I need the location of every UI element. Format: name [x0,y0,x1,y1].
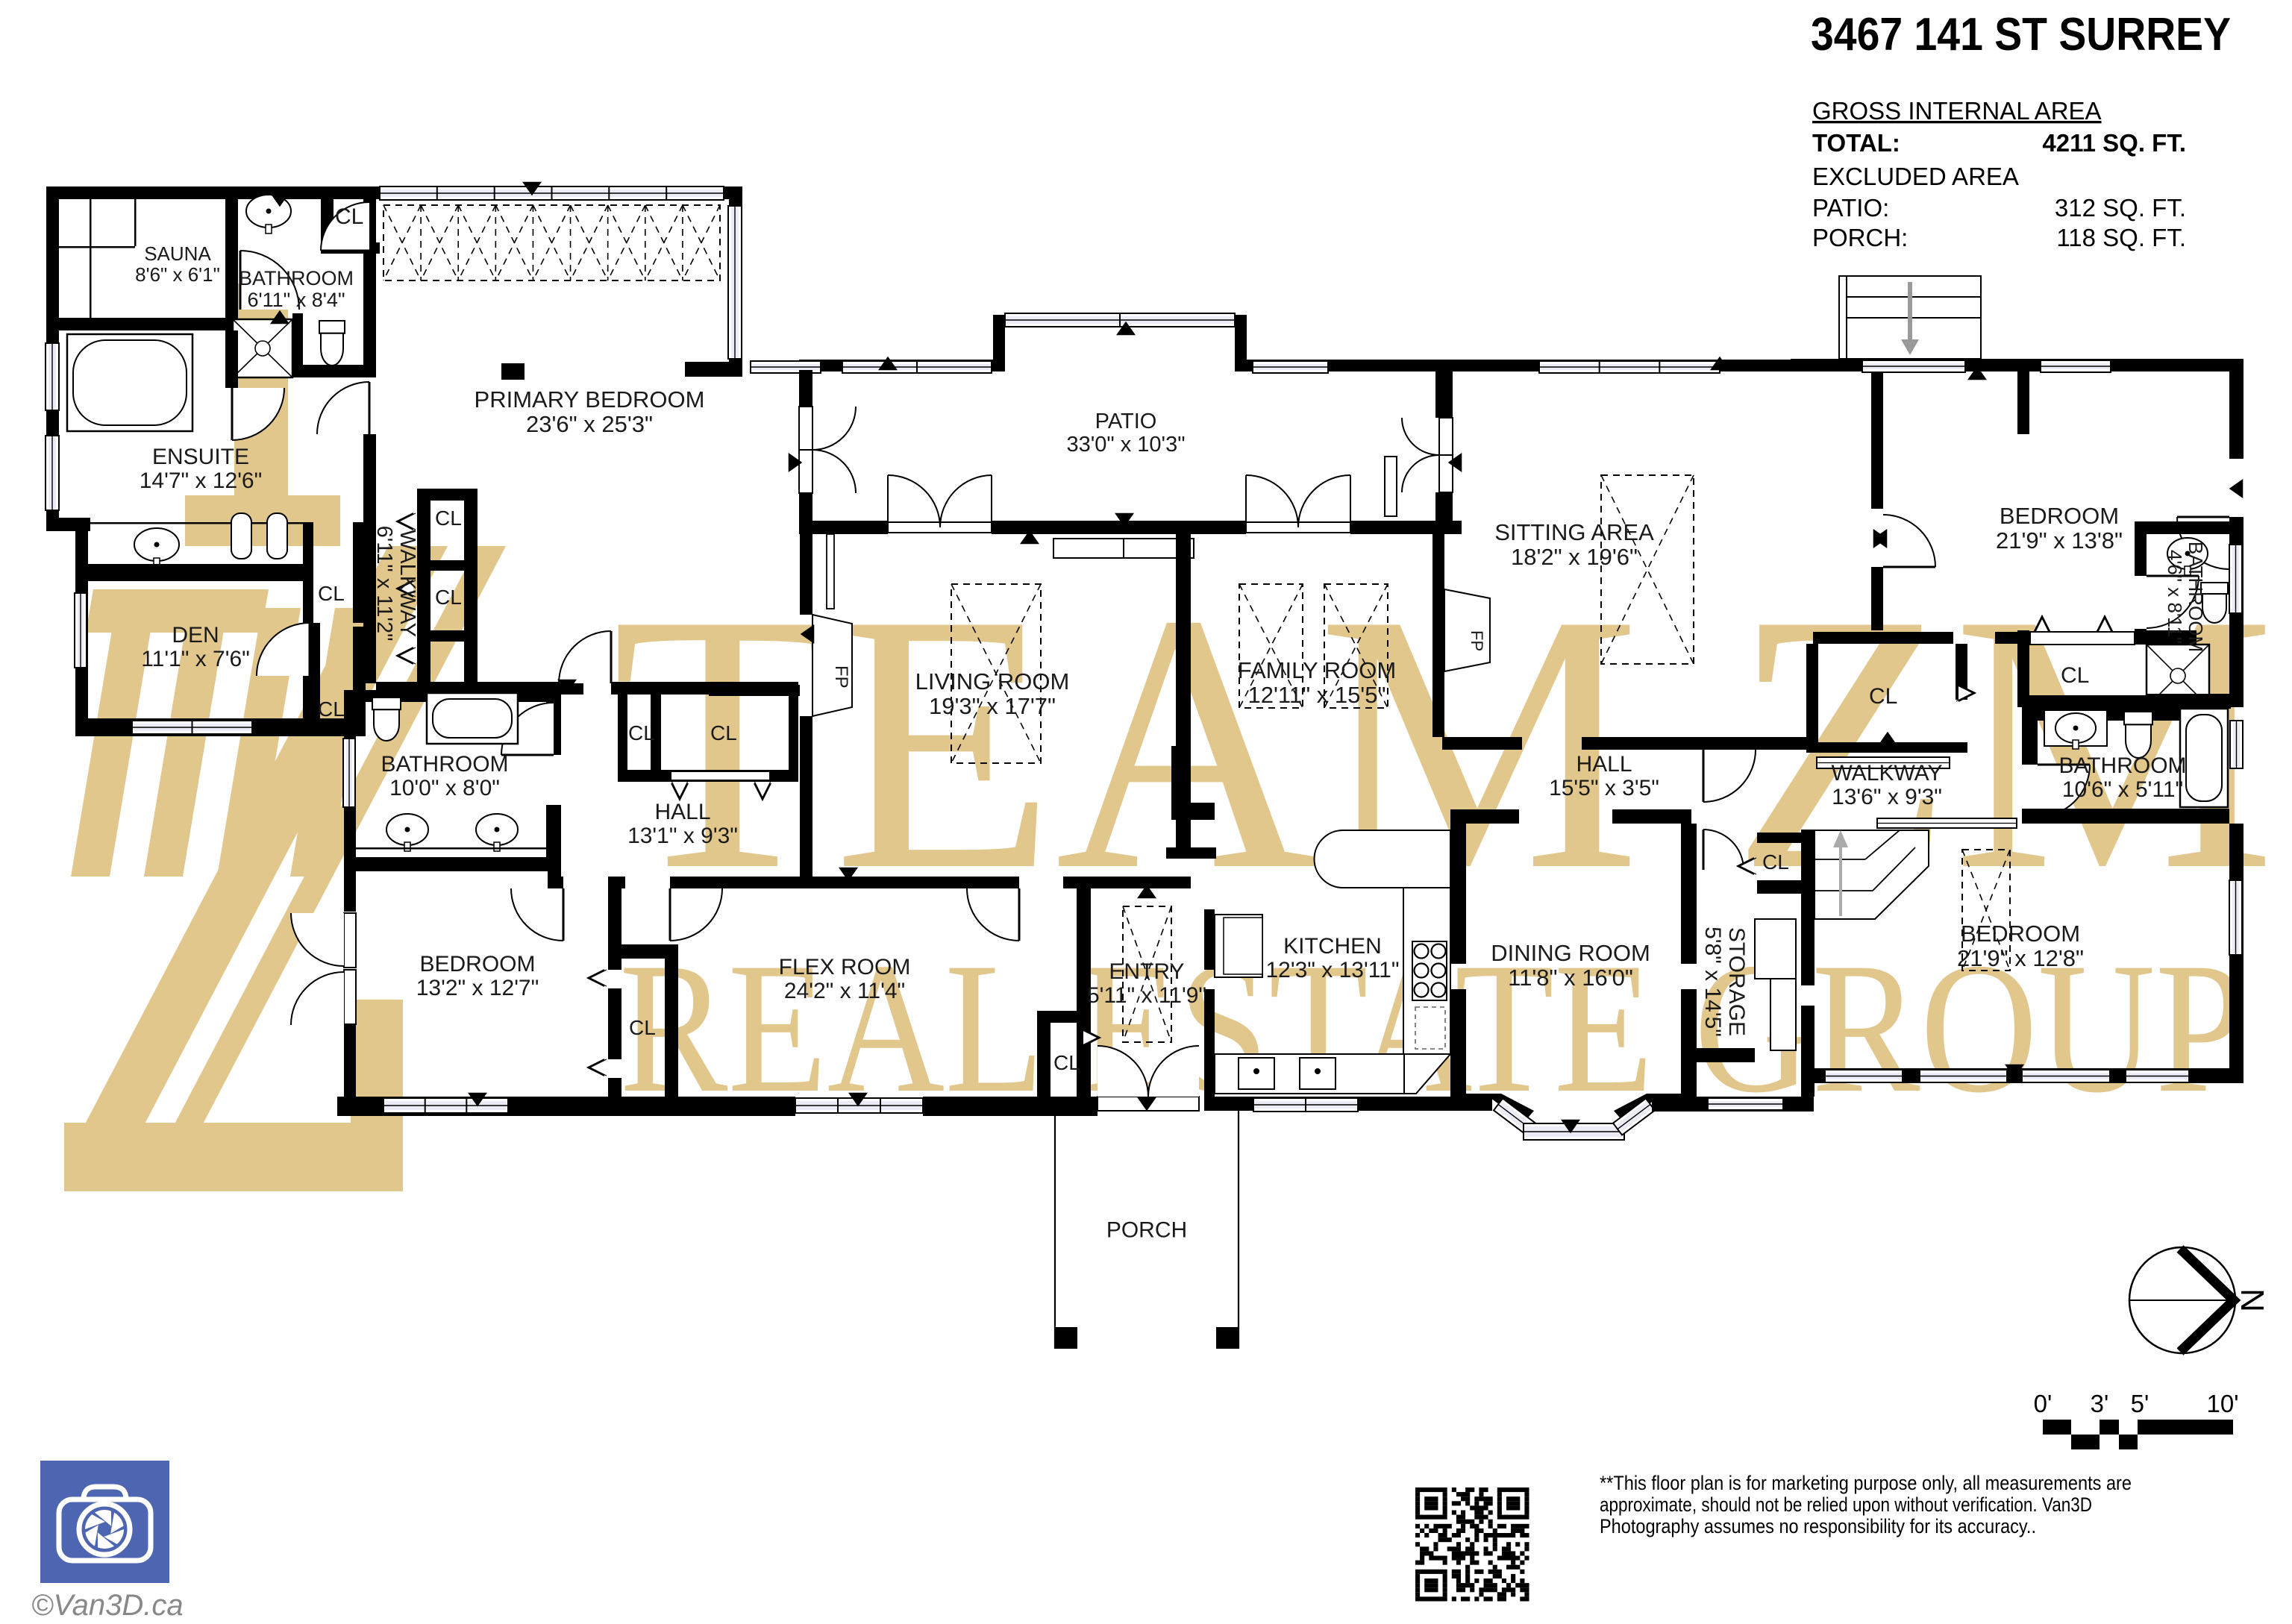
svg-text:LIVING ROOM: LIVING ROOM [915,668,1070,695]
svg-text:STORAGE: STORAGE [1724,927,1749,1036]
svg-text:DINING ROOM: DINING ROOM [1491,940,1650,966]
svg-text:12'11" x 15'5": 12'11" x 15'5" [1248,682,1386,708]
svg-text:CL: CL [1869,684,1897,709]
svg-text:WALKWAY: WALKWAY [1832,761,1943,786]
svg-text:SITTING AREA: SITTING AREA [1494,519,1654,545]
svg-text:CL: CL [710,721,737,744]
svg-text:21'9" x 12'8": 21'9" x 12'8" [1957,945,2084,971]
svg-text:4211 SQ. FT.: 4211 SQ. FT. [2042,129,2186,157]
svg-text:11'8" x 16'0": 11'8" x 16'0" [1508,965,1633,991]
svg-text:12'3" x 13'11": 12'3" x 13'11" [1266,958,1400,982]
svg-text:**This floor plan is for marke: **This floor plan is for marketing purpo… [1600,1472,2132,1494]
svg-text:0': 0' [2034,1390,2053,1417]
svg-text:CL: CL [628,721,655,744]
svg-text:CL: CL [2061,663,2089,688]
svg-text:23'6" x 25'3": 23'6" x 25'3" [526,411,653,437]
svg-text:CL: CL [318,697,345,721]
svg-text:BEDROOM: BEDROOM [2000,503,2119,529]
svg-text:CL: CL [435,586,462,609]
svg-text:CL: CL [629,1016,656,1039]
svg-text:CL: CL [318,582,345,605]
svg-text:PORCH:: PORCH: [1812,224,1908,251]
svg-text:14'7" x 12'6": 14'7" x 12'6" [140,468,263,493]
svg-text:BATHROOM: BATHROOM [2058,753,2186,778]
svg-text:FP: FP [831,665,851,689]
svg-text:WALKWAY: WALKWAY [395,530,419,637]
svg-text:HALL: HALL [654,800,710,824]
svg-text:21'9" x 13'8": 21'9" x 13'8" [1996,527,2123,554]
svg-text:PATIO:: PATIO: [1812,194,1889,222]
svg-text:6'11" x 11'2": 6'11" x 11'2" [372,526,396,642]
svg-text:3467 141 ST SURREY: 3467 141 ST SURREY [1811,9,2231,60]
svg-text:TOTAL:: TOTAL: [1812,129,1900,157]
svg-text:5'11" x 11'9": 5'11" x 11'9" [1087,983,1206,1008]
svg-text:CL: CL [435,507,462,530]
svg-text:PATIO: PATIO [1095,410,1157,433]
svg-text:ENTRY: ENTRY [1109,959,1184,984]
svg-text:13'1" x 9'3": 13'1" x 9'3" [627,824,738,848]
svg-text:BATHROOM: BATHROOM [2185,542,2207,652]
svg-text:FLEX ROOM: FLEX ROOM [779,955,911,979]
svg-text:15'5" x 3'5": 15'5" x 3'5" [1549,776,1659,800]
svg-text:HALL: HALL [1576,752,1632,777]
svg-text:10': 10' [2206,1390,2238,1417]
svg-text:BEDROOM: BEDROOM [419,952,535,976]
svg-text:DEN: DEN [172,623,219,648]
svg-text:approximate, should not be rel: approximate, should not be relied upon w… [1600,1493,2092,1516]
svg-text:5': 5' [2131,1390,2149,1417]
svg-text:FAMILY ROOM: FAMILY ROOM [1238,657,1396,683]
svg-text:ENSUITE: ENSUITE [152,445,249,469]
svg-text:11'1" x 7'6": 11'1" x 7'6" [141,647,250,671]
svg-text:118 SQ. FT.: 118 SQ. FT. [2056,224,2186,251]
svg-text:BATHROOM: BATHROOM [239,267,354,289]
svg-text:4'6" x 8'11": 4'6" x 8'11" [2164,550,2186,644]
svg-text:CL: CL [1762,850,1789,874]
svg-text:13'2" x 12'7": 13'2" x 12'7" [416,976,539,1000]
svg-text:19'3" x 17'7": 19'3" x 17'7" [929,693,1056,719]
svg-text:10'6" x 5'11": 10'6" x 5'11" [2062,777,2183,802]
svg-text:5'8" x 14'5": 5'8" x 14'5" [1700,927,1725,1037]
svg-text:FP: FP [1468,630,1486,651]
svg-text:GROSS INTERNAL AREA: GROSS INTERNAL AREA [1812,97,2102,125]
svg-text:6'11" x 8'4": 6'11" x 8'4" [247,289,345,311]
svg-text:BATHROOM: BATHROOM [381,752,508,777]
svg-text:Photography assumes no respons: Photography assumes no responsibility fo… [1600,1515,2036,1537]
svg-text:CL: CL [1053,1051,1080,1074]
svg-text:24'2" x 11'4": 24'2" x 11'4" [784,979,905,1003]
svg-text:10'0" x 8'0": 10'0" x 8'0" [389,776,500,800]
svg-text:©Van3D.ca: ©Van3D.ca [31,1589,184,1622]
svg-text:SAUNA: SAUNA [144,242,211,265]
svg-text:EXCLUDED AREA: EXCLUDED AREA [1812,163,2019,190]
svg-text:KITCHEN: KITCHEN [1283,934,1382,959]
svg-text:8'6" x 6'1": 8'6" x 6'1" [135,263,220,286]
svg-text:PRIMARY BEDROOM: PRIMARY BEDROOM [475,386,705,413]
svg-text:33'0" x 10'3": 33'0" x 10'3" [1066,433,1185,457]
svg-text:N: N [2234,1288,2270,1312]
svg-text:312 SQ. FT.: 312 SQ. FT. [2055,194,2186,222]
svg-text:18'2" x 19'6": 18'2" x 19'6" [1511,544,1638,570]
svg-text:CL: CL [335,204,363,229]
svg-text:3': 3' [2091,1390,2109,1417]
svg-text:BEDROOM: BEDROOM [1961,921,2080,947]
svg-text:13'6" x 9'3": 13'6" x 9'3" [1832,785,1942,809]
svg-text:PORCH: PORCH [1106,1218,1187,1243]
